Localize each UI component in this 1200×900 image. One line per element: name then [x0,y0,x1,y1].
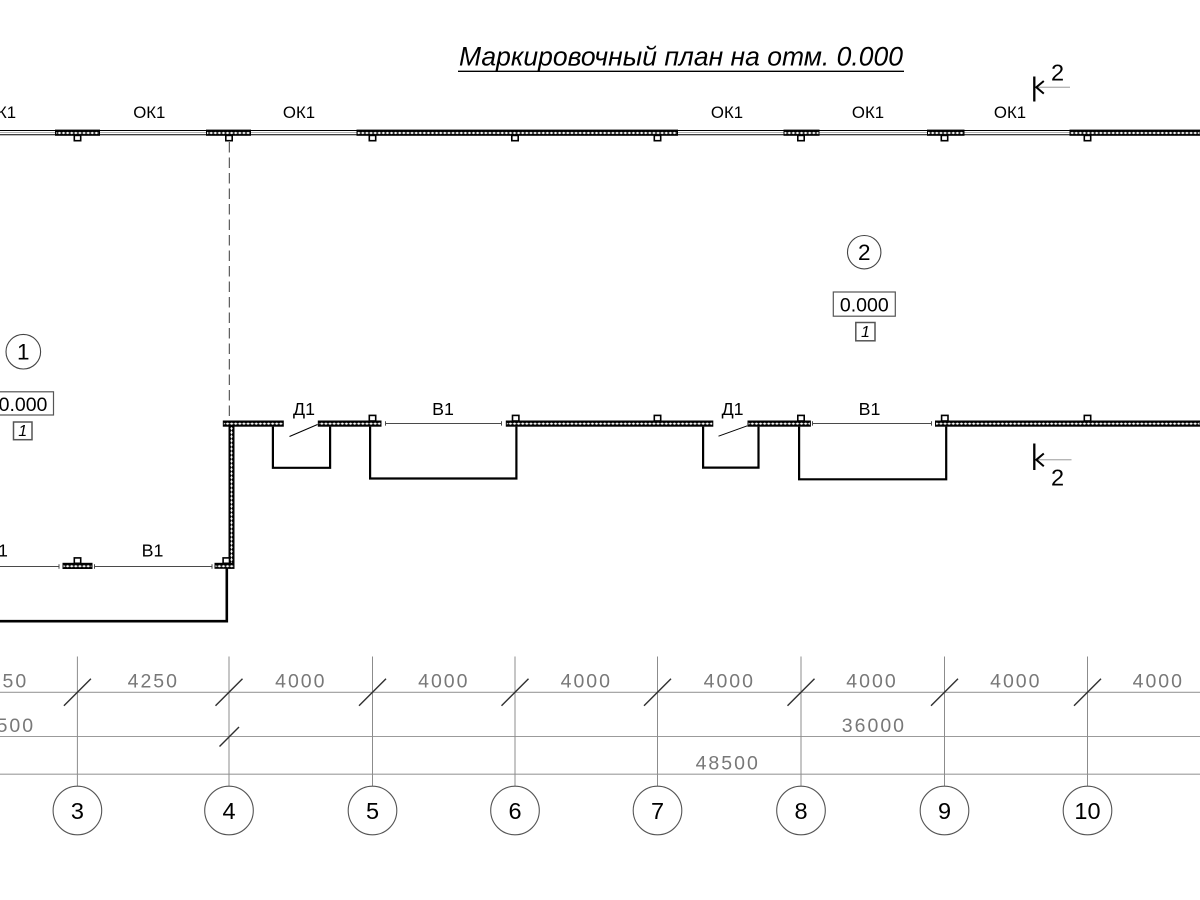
svg-text:4000: 4000 [418,671,469,693]
svg-text:4250: 4250 [128,671,179,693]
svg-text:В1: В1 [432,399,454,419]
svg-text:4000: 4000 [704,671,755,693]
svg-text:1: 1 [861,324,870,341]
svg-text:ОК1: ОК1 [0,103,16,122]
svg-text:ОК1: ОК1 [711,103,743,122]
svg-text:48500: 48500 [696,753,760,775]
svg-text:В1: В1 [0,541,8,561]
svg-text:Д1: Д1 [722,399,744,419]
svg-text:10: 10 [1074,798,1100,824]
svg-text:6: 6 [508,798,521,824]
svg-text:4000: 4000 [846,671,897,693]
svg-text:Маркировочный план на отм. 0.0: Маркировочный план на отм. 0.000 [459,42,903,72]
svg-text:9: 9 [938,798,951,824]
svg-text:7: 7 [651,798,664,824]
svg-text:3: 3 [71,798,84,824]
svg-text:0.000: 0.000 [840,295,889,317]
svg-text:5: 5 [366,798,379,824]
svg-text:В1: В1 [859,399,881,419]
svg-text:8: 8 [794,798,807,824]
svg-text:1250: 1250 [0,671,28,693]
svg-text:12500: 12500 [0,715,35,737]
svg-text:4000: 4000 [561,671,612,693]
svg-text:4000: 4000 [990,671,1041,693]
svg-text:0.000: 0.000 [0,394,48,416]
svg-text:2: 2 [1051,60,1064,86]
svg-text:ОК1: ОК1 [283,103,315,122]
svg-text:1: 1 [17,340,30,365]
svg-text:1: 1 [18,423,27,440]
svg-text:4000: 4000 [275,671,326,693]
svg-text:2: 2 [858,240,871,265]
svg-text:36000: 36000 [842,715,906,737]
svg-text:2: 2 [1051,465,1064,491]
svg-text:ОК1: ОК1 [133,103,165,122]
svg-text:ОК1: ОК1 [852,103,884,122]
svg-text:4000: 4000 [1133,671,1184,693]
svg-text:Д1: Д1 [293,399,315,419]
svg-text:4: 4 [222,798,235,824]
svg-text:ОК1: ОК1 [994,103,1026,122]
svg-text:В1: В1 [142,541,164,561]
